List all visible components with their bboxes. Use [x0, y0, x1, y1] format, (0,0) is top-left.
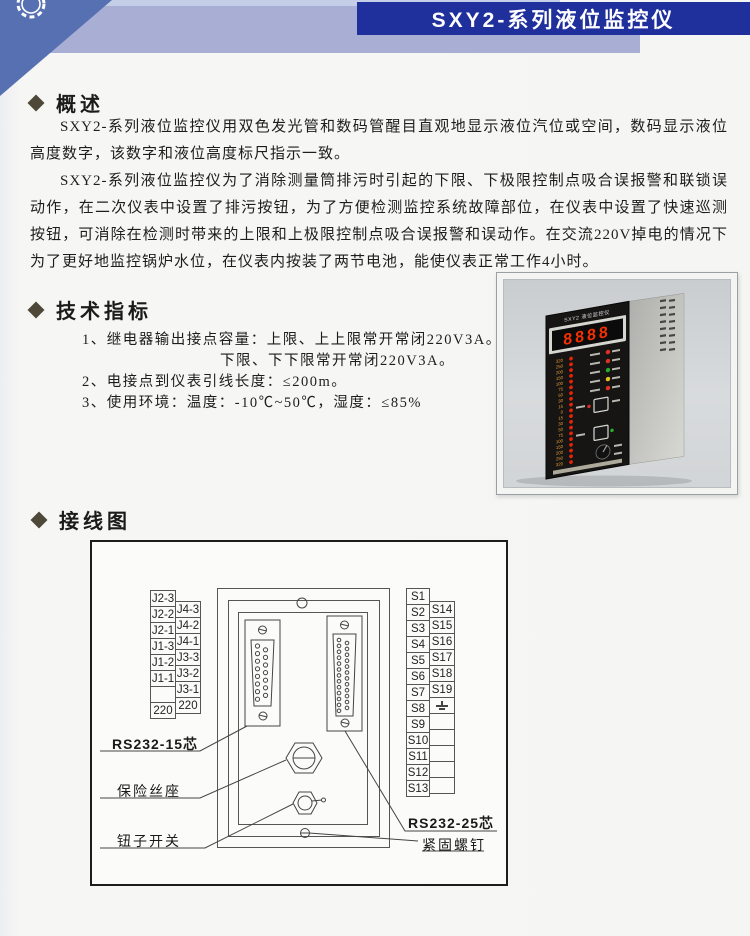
terminal-cell: J4-1	[175, 633, 201, 650]
ground-symbol	[435, 701, 449, 711]
spec-item-continuation: 下限、下下限常开常闭220V3A。	[220, 351, 502, 371]
terminal-cell: S9	[406, 716, 430, 733]
title-banner: SXY2-系列液位监控仪	[357, 2, 750, 35]
gear-icon	[2, 0, 62, 30]
section-wiring-heading: 接线图	[33, 505, 131, 534]
terminal-cell: S18	[429, 665, 455, 682]
product-photo: SXY2 液位监控仪 8888 320250200150100755030150…	[496, 272, 738, 495]
wiring-heading-text: 接线图	[59, 505, 131, 534]
terminal-cell: J3-1	[175, 681, 201, 698]
terminal-cell: S10	[406, 732, 430, 749]
terminal-cell: J2-3	[150, 590, 176, 607]
case-shadow	[516, 476, 692, 487]
terminal-cell: S3	[406, 620, 430, 637]
terminal-cell: S14	[429, 601, 455, 618]
terminal-cell: 220	[175, 697, 201, 714]
photo-background: SXY2 液位监控仪 8888 320250200150100755030150…	[503, 279, 731, 488]
terminal-cell: J2-2	[150, 606, 176, 623]
terminal-block-s1-s13: S1S2S3S4S5S6S7S8S9S10S11S12S13	[406, 588, 430, 797]
db25-label: RS232-25芯	[408, 813, 494, 833]
panel-outline-inner	[238, 612, 368, 825]
terminal-cell	[429, 761, 455, 778]
terminal-cell: S11	[406, 748, 430, 765]
terminal-cell: S15	[429, 617, 455, 634]
terminal-cell: S13	[406, 780, 430, 797]
terminal-block-j2-j1: J2-3J2-2J2-1J1-3J1-2J1-1220	[150, 590, 176, 719]
specs-list: 1、继电器输出接点容量：上限、上上限常开常闭220V3A。 下限、下下限常开常闭…	[82, 330, 502, 414]
terminal-cell: S8	[406, 700, 430, 717]
spec-item: 3、使用环境：温度：-10℃~50℃，湿度：≤85%	[82, 393, 502, 413]
fuse-label: 保险丝座	[117, 781, 181, 801]
spec-item: 2、电接点到仪表引线长度：≤200m。	[82, 372, 502, 392]
terminal-cell: S12	[406, 764, 430, 781]
terminal-cell: S19	[429, 681, 455, 698]
section-overview-heading: 概述	[30, 88, 104, 117]
section-specs-heading: 技术指标	[30, 295, 152, 324]
page-title: SXY2-系列液位监控仪	[432, 4, 676, 34]
diamond-bullet-icon	[28, 301, 45, 318]
terminal-cell: J2-1	[150, 622, 176, 639]
terminal-cell: S4	[406, 636, 430, 653]
instrument-illustration: SXY2 液位监控仪 8888 320250200150100755030150…	[504, 280, 732, 489]
specs-heading-text: 技术指标	[56, 295, 152, 324]
terminal-cell: 220	[150, 702, 176, 719]
work-button	[594, 425, 608, 440]
terminal-block-j4-j3: J4-3J4-2J4-1J3-3J3-2J3-1220	[175, 601, 201, 714]
ground-terminal-cell	[429, 697, 455, 714]
terminal-cell: S2	[406, 604, 430, 621]
terminal-cell: J1-3	[150, 638, 176, 655]
terminal-cell	[429, 777, 455, 794]
terminal-cell: J1-1	[150, 670, 176, 687]
mute-button	[594, 397, 608, 412]
terminal-cell	[429, 729, 455, 746]
terminal-cell: J1-2	[150, 654, 176, 671]
screw-label: 紧固螺钉	[422, 835, 486, 855]
terminal-cell: S1	[406, 588, 430, 605]
terminal-cell: S5	[406, 652, 430, 669]
terminal-cell: S6	[406, 668, 430, 685]
diamond-bullet-icon	[28, 94, 45, 111]
terminal-cell: J3-3	[175, 649, 201, 666]
overview-paragraphs: SXY2-系列液位监控仪用双色发光管和数码管醒目直观地显示液位汽位或空间，数码显…	[30, 114, 728, 276]
overview-heading-text: 概述	[56, 88, 104, 117]
wiring-diagram: J2-3J2-2J2-1J1-3J1-2J1-1220 J4-3J4-2J4-1…	[90, 540, 508, 886]
catalog-page: SXY2-系列液位监控仪 概述 SXY2-系列液位监控仪用双色发光管和数码管醒目…	[0, 0, 750, 936]
terminal-cell: S17	[429, 649, 455, 666]
terminal-cell: J4-3	[175, 601, 201, 618]
overview-paragraph-2: SXY2-系列液位监控仪为了消除测量筒排污时引起的下限、下极限控制点吸合误报警和…	[30, 168, 728, 276]
terminal-cell: J3-2	[175, 665, 201, 682]
toggle-label: 钮子开关	[117, 831, 181, 851]
front-panel: SXY2 液位监控仪 8888 320250200150100755030150…	[546, 301, 629, 479]
terminal-cell: S7	[406, 684, 430, 701]
db15-label: RS232-15芯	[112, 734, 198, 754]
spec-item: 1、继电器输出接点容量：上限、上上限常开常闭220V3A。	[82, 330, 502, 350]
terminal-cell	[150, 686, 176, 703]
case-side-face	[629, 293, 684, 464]
diamond-bullet-icon	[31, 511, 48, 528]
terminal-block-s14-s19: S14S15S16S17S18S19	[429, 601, 455, 794]
terminal-cell	[429, 713, 455, 730]
overview-paragraph-1: SXY2-系列液位监控仪用双色发光管和数码管醒目直观地显示液位汽位或空间，数码显…	[30, 114, 728, 168]
terminal-cell: S16	[429, 633, 455, 650]
terminal-cell: J4-2	[175, 617, 201, 634]
terminal-cell	[429, 745, 455, 762]
